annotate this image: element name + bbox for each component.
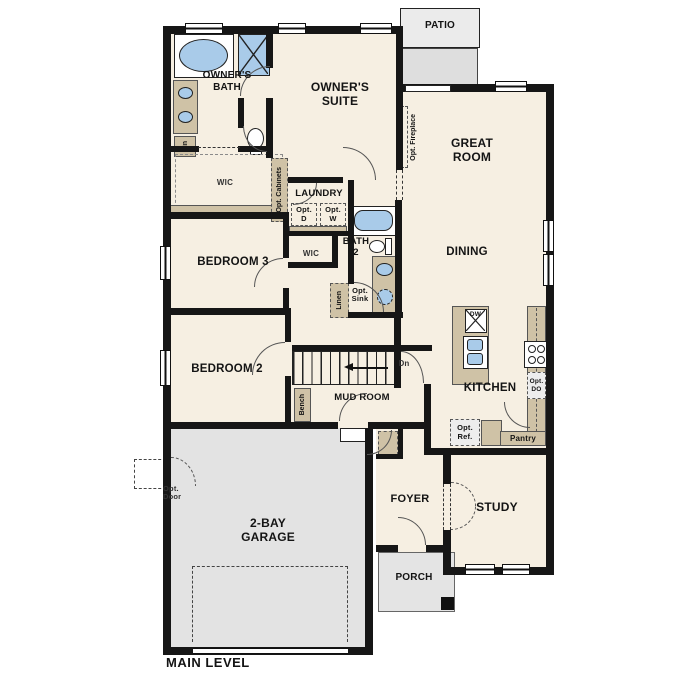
wall (376, 454, 403, 459)
room-label-study: STUDY (457, 500, 537, 514)
opt-dryer-label: Opt. D (296, 206, 312, 223)
bench-label: Bench (299, 394, 306, 415)
window (278, 23, 306, 34)
wall (395, 200, 402, 318)
wall (546, 84, 554, 575)
wall (163, 422, 338, 429)
wall (398, 428, 403, 457)
wall (443, 567, 554, 575)
dn-label: Dn (395, 359, 413, 368)
wall (396, 26, 403, 88)
opt-sink-label: Opt. Sink (346, 287, 374, 304)
wall (424, 384, 431, 455)
cabinet-beside-ref (481, 420, 502, 446)
opt-ref-label: Opt. Ref. (457, 424, 473, 441)
window (360, 23, 392, 34)
opt-dryer-box: Opt. D (291, 203, 317, 226)
floor-plan: Lin Opt. Cabinets Opt. D Opt. W Linen Be… (0, 0, 687, 687)
room-label-patio: PATIO (400, 20, 480, 32)
mudroom-bench: Bench (294, 388, 311, 422)
room-label-porch: PORCH (379, 572, 449, 584)
garage-door-opening (193, 648, 348, 654)
sink-icon (178, 111, 193, 123)
wall (285, 376, 291, 422)
room-label-bath2: BATH 2 (338, 236, 374, 258)
garage-entry-step (340, 428, 368, 442)
wall (292, 345, 432, 351)
wall (396, 84, 403, 170)
pantry-shelf: Pantry (500, 431, 546, 446)
room-label-kitchen: KITCHEN (455, 382, 525, 396)
room-label-wic-owners: WIC (200, 178, 250, 187)
opt-door-box (134, 459, 166, 489)
wall (376, 545, 398, 552)
opt-cabinets-label: Opt. Cabinets (276, 167, 283, 213)
sink-icon (376, 263, 393, 276)
garage-door-outline (192, 566, 348, 642)
stairs-arrow-head (344, 363, 353, 371)
plan-title: MAIN LEVEL (166, 655, 306, 670)
opt-fireplace-label: Opt. Fireplace (410, 114, 417, 161)
opt-door-label: Opt. Door (163, 485, 203, 502)
linen-label: Linen (336, 291, 343, 310)
wall (163, 212, 289, 219)
opt-washer-label: Opt. W (325, 206, 341, 223)
pantry-label: Pantry (510, 434, 536, 443)
dishwasher-icon: DW (465, 309, 487, 333)
wall (426, 545, 446, 552)
opt-do-label: Opt. DO (530, 378, 544, 393)
opt-refrigerator-box: Opt. Ref. (450, 419, 480, 446)
opt-double-oven-box: Opt. DO (527, 372, 546, 399)
dashed-opening (396, 170, 403, 200)
wall (238, 98, 244, 128)
patio-slider-door (405, 85, 451, 92)
island-sink (463, 336, 488, 369)
room-label-mud-room: MUD ROOM (312, 392, 412, 403)
room-label-bedroom3: BEDROOM 3 (166, 256, 300, 270)
room-label-dining: DINING (432, 246, 502, 260)
dw-label: DW (466, 311, 485, 319)
window (495, 81, 527, 92)
wall (266, 30, 273, 68)
window (185, 23, 223, 34)
wall (283, 212, 289, 258)
room-label-garage: 2-BAY GARAGE (208, 516, 328, 544)
wall (163, 146, 199, 152)
wall (163, 308, 291, 315)
patio-covered-area (402, 48, 478, 86)
stairs-arrow-line (352, 367, 388, 369)
room-label-owners-bath: OWNER'S BATH (190, 70, 264, 94)
porch-column (441, 597, 454, 610)
wall (424, 448, 554, 455)
wall (283, 288, 289, 310)
dashed-opening (198, 147, 240, 148)
window (543, 220, 554, 252)
window (465, 564, 495, 575)
bathtub2-icon (350, 206, 398, 236)
wall (163, 26, 171, 655)
range-icon (524, 341, 548, 368)
wall (285, 308, 291, 342)
wall (394, 318, 401, 388)
wall (365, 428, 373, 655)
dashed-opening (443, 484, 451, 530)
room-label-owners-suite: OWNER'S SUITE (298, 80, 382, 108)
opt-fireplace-label-wrap: Opt. Fireplace (407, 104, 420, 170)
window (502, 564, 530, 575)
room-label-laundry: LAUNDRY (288, 188, 350, 199)
window (543, 254, 554, 286)
room-label-foyer: FOYER (375, 493, 445, 506)
room-label-bedroom2: BEDROOM 2 (166, 363, 288, 377)
room-label-great-room: GREAT ROOM (437, 136, 507, 164)
toilet2-tank (385, 238, 392, 255)
opt-washer-box: Opt. W (320, 203, 346, 226)
